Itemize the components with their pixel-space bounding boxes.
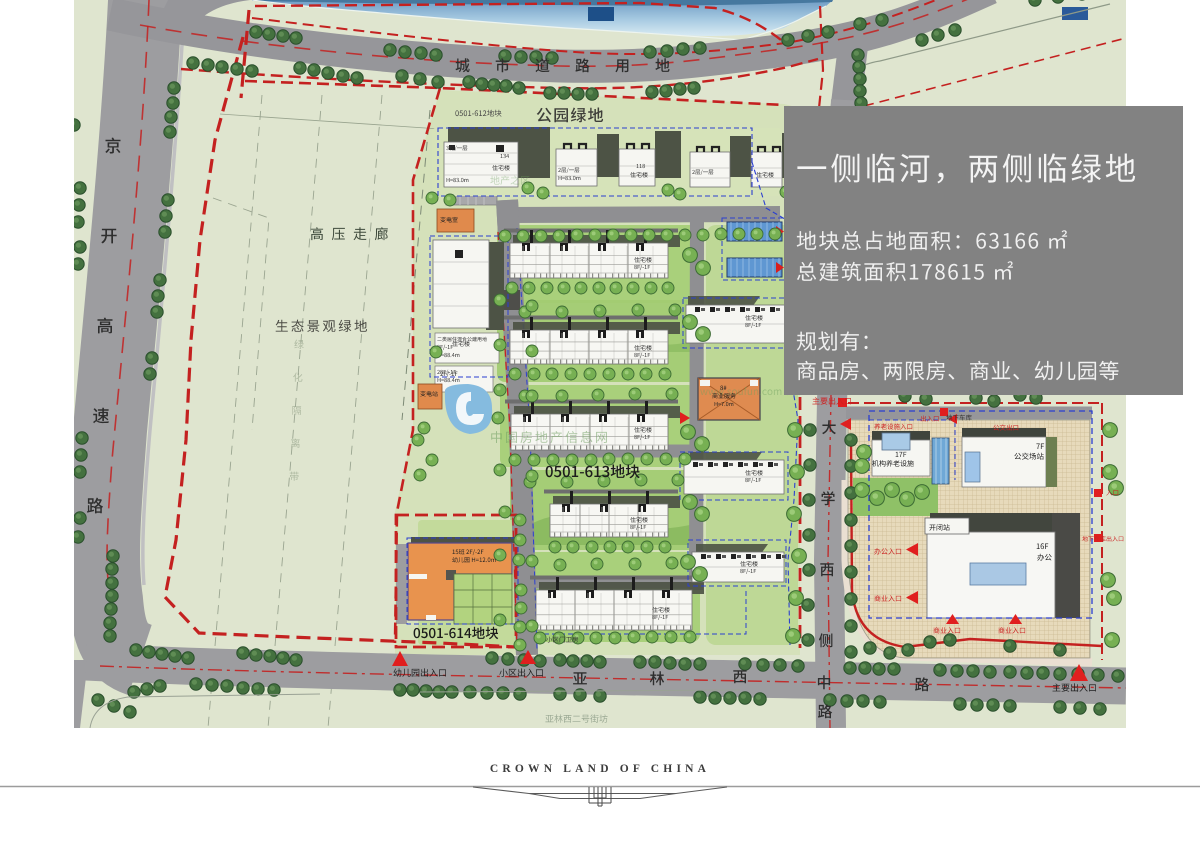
- svg-text:CROWN LAND OF CHINA: CROWN LAND OF CHINA: [490, 763, 710, 775]
